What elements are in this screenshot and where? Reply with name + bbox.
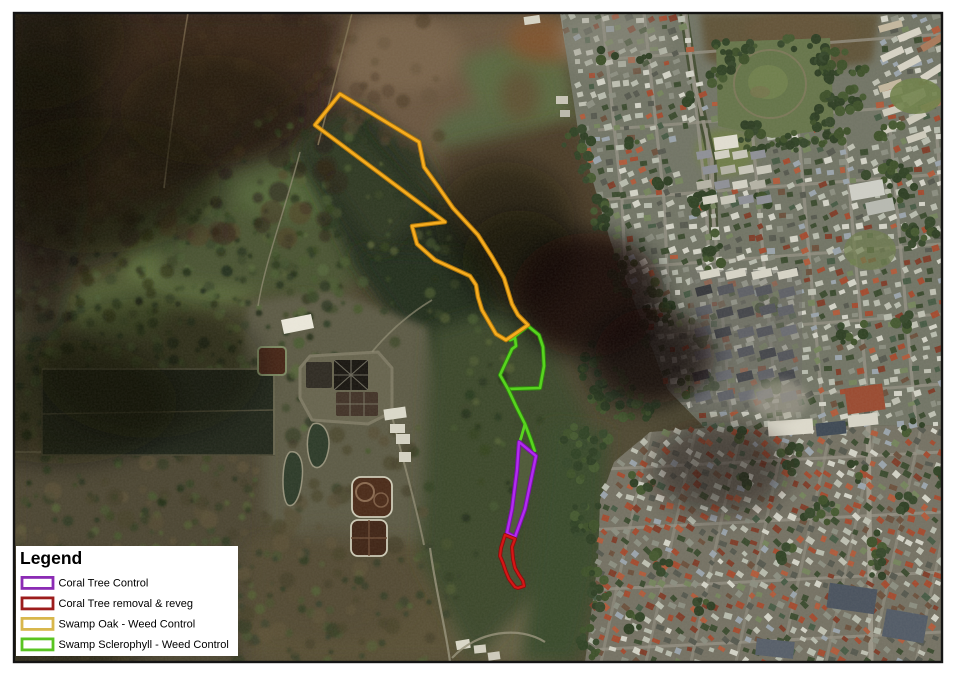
svg-text:Swamp Sclerophyll - Weed Contr: Swamp Sclerophyll - Weed Control: [59, 639, 229, 651]
svg-text:Coral Tree removal & reveg: Coral Tree removal & reveg: [59, 598, 194, 610]
svg-text:Coral Tree Control: Coral Tree Control: [59, 578, 149, 590]
svg-text:Swamp Oak - Weed Control: Swamp Oak - Weed Control: [59, 619, 196, 631]
svg-text:Legend: Legend: [20, 548, 82, 568]
